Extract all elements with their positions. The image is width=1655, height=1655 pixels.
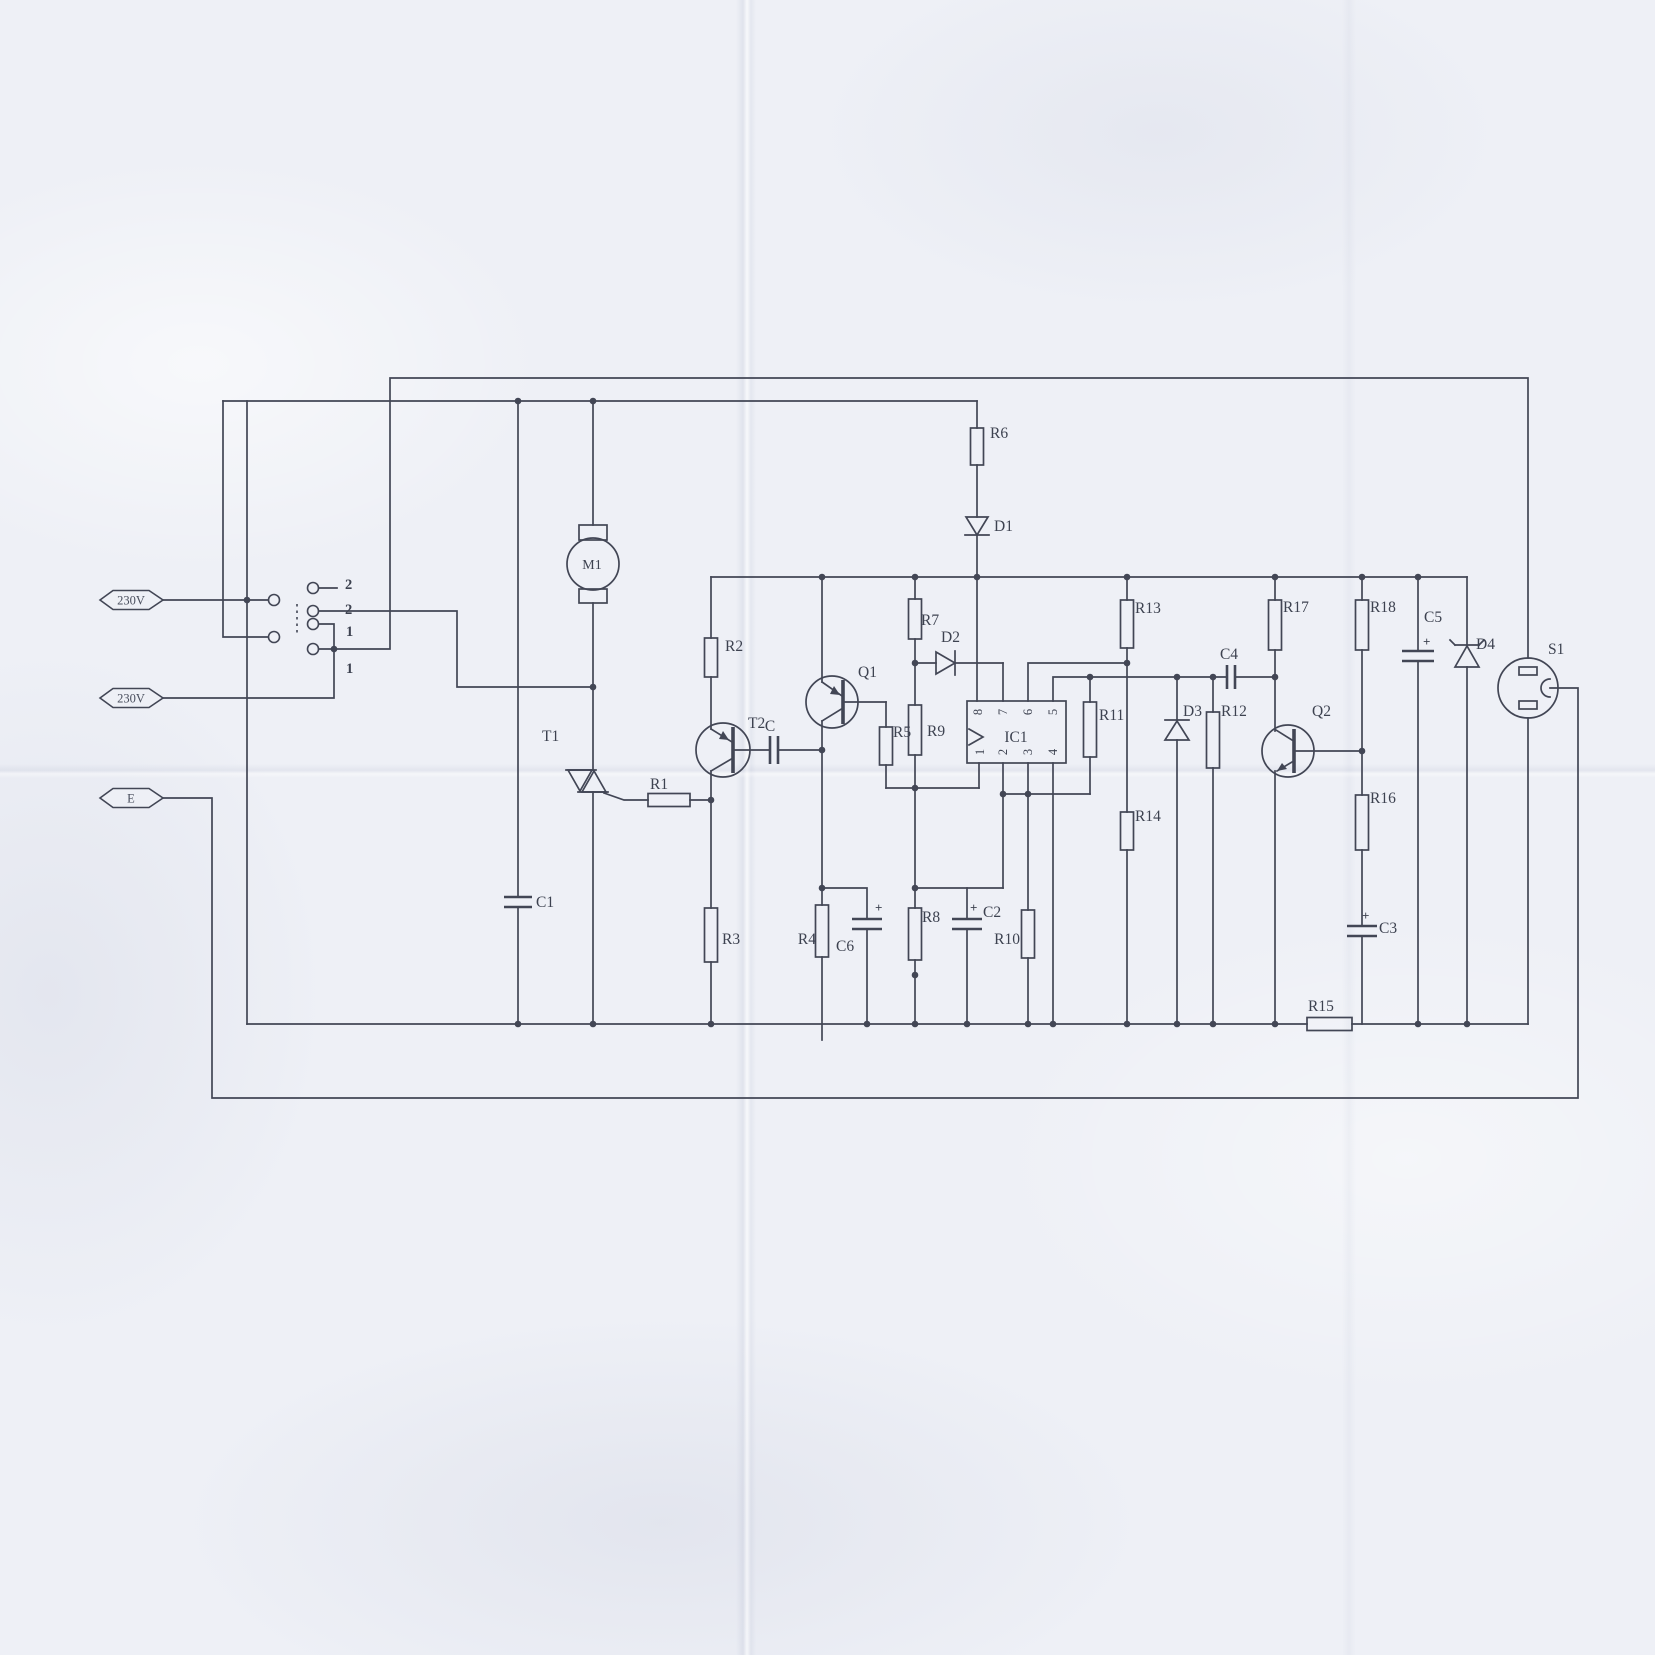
ic1-pin4: 4	[1046, 748, 1060, 755]
capacitor-c-label: C	[765, 718, 775, 735]
resistor-r5: R5	[880, 702, 980, 788]
transistor-q2: Q2	[1262, 677, 1362, 1024]
resistor-r18: R18	[1356, 577, 1397, 795]
ic1-notch	[969, 729, 983, 745]
switch-throw-1b	[308, 644, 319, 655]
outer-rail-wires	[162, 378, 1578, 1098]
ic1-pin8: 8	[971, 709, 985, 715]
capacitor-c4: C4	[1220, 646, 1275, 689]
resistor-r15: R15	[1307, 998, 1352, 1031]
capacitor-c6: + C6	[822, 888, 882, 1024]
resistor-r9: R9	[909, 705, 946, 908]
resistor-r17: R17	[1269, 577, 1310, 677]
transistor-t2: T2	[696, 677, 769, 908]
resistor-r14-label: R14	[1135, 808, 1161, 825]
switch-pole-contact-1	[269, 595, 280, 606]
ic1-pin1: 1	[973, 749, 987, 755]
ic1-pin5: 5	[1046, 709, 1060, 715]
triac-gate-wire	[604, 793, 648, 800]
resistor-r1-label: R1	[650, 776, 668, 793]
capacitor-c2-polarity: +	[970, 900, 977, 915]
diode-d1: D1	[965, 517, 1013, 701]
diode-d4-label: D4	[1476, 636, 1495, 653]
terminal-earth: E	[100, 789, 163, 808]
socket-slot-top	[1519, 667, 1537, 675]
resistor-r2-label: R2	[725, 638, 743, 655]
capacitor-c3-label: C3	[1379, 920, 1397, 937]
switch-pos-label: 2	[345, 602, 352, 618]
ic1-pin3: 3	[1021, 749, 1035, 755]
switch-throw-2a	[308, 583, 319, 594]
switch-pos-label: 1	[346, 661, 353, 677]
resistor-r12-label: R12	[1221, 703, 1247, 720]
resistor-r11: R11	[1084, 677, 1125, 794]
resistor-r4: R4	[798, 905, 829, 1040]
ic1-pin6: 6	[1021, 709, 1035, 715]
switch-pos-label: 2	[345, 577, 352, 593]
transistor-q2-label: Q2	[1312, 703, 1331, 720]
ic1: IC1 8 7 6 5 1 2 3 4	[915, 663, 1227, 1024]
ic1-pin2: 2	[996, 749, 1010, 755]
resistor-r14: R14	[1121, 808, 1162, 1024]
resistor-r10-label: R10	[994, 931, 1020, 948]
socket-slot-bottom	[1519, 701, 1537, 709]
terminal-line2-label: 230V	[117, 692, 145, 706]
resistor-r2: R2	[705, 577, 744, 677]
switch-pole-contact-2	[269, 632, 280, 643]
resistor-r13-label: R13	[1135, 600, 1161, 617]
capacitor-c3-polarity: +	[1362, 908, 1369, 923]
resistor-r16: R16	[1356, 790, 1397, 926]
motor-m1-label: M1	[582, 558, 601, 573]
transistor-q1: Q1	[806, 577, 886, 905]
ic1-label: IC1	[1004, 729, 1027, 746]
capacitor-c2: + C2	[952, 888, 1001, 1024]
diode-d1-label: D1	[994, 518, 1013, 535]
resistor-r1: R1	[648, 776, 711, 807]
triac-t1: T1	[542, 728, 648, 1024]
resistor-r8-label: R8	[922, 909, 940, 926]
capacitor-c6-polarity: +	[875, 900, 882, 915]
capacitor-c4-label: C4	[1220, 646, 1238, 663]
resistor-r13: R13	[1121, 577, 1162, 812]
resistor-r11-label: R11	[1099, 707, 1124, 724]
resistor-r3: R3	[705, 908, 741, 1024]
resistor-r16-label: R16	[1370, 790, 1396, 807]
resistor-r4-label: R4	[798, 931, 816, 948]
capacitor-c-coupling: C	[765, 718, 822, 764]
resistor-r9-label: R9	[927, 723, 945, 740]
ic1-pin7: 7	[996, 709, 1010, 715]
switch-throw-1a	[308, 619, 319, 630]
resistor-r12: R12	[1207, 677, 1247, 1024]
terminal-line1: 230V	[100, 591, 269, 610]
switch-pos-label: 1	[346, 624, 353, 640]
resistor-r18-label: R18	[1370, 599, 1396, 616]
resistor-r17-label: R17	[1283, 599, 1309, 616]
transistor-q1-label: Q1	[858, 664, 877, 681]
capacitor-c5-label: C5	[1424, 609, 1442, 626]
resistor-r7: R7	[909, 577, 940, 705]
resistor-r3-label: R3	[722, 931, 740, 948]
resistor-r15-label: R15	[1308, 998, 1334, 1015]
resistor-r6: R6	[971, 401, 1009, 517]
capacitor-c5: + C5	[1402, 577, 1442, 1024]
diode-d4-zener: D4	[1450, 577, 1495, 1024]
resistor-r7-label: R7	[921, 612, 939, 629]
resistor-r10: R10	[994, 910, 1034, 1024]
scanned-schematic-page: 230V 230V E 2 2 1 1	[0, 0, 1655, 1655]
terminal-earth-label: E	[127, 792, 135, 806]
terminal-line2: 230V	[100, 649, 334, 708]
resistor-r8: R8	[909, 908, 941, 1024]
capacitor-c2-label: C2	[983, 904, 1001, 921]
resistor-r6-label: R6	[990, 425, 1008, 442]
junction-dots	[244, 398, 1471, 1028]
socket-s1: S1	[1498, 641, 1564, 718]
terminal-line1-label: 230V	[117, 594, 145, 608]
capacitor-c5-polarity: +	[1423, 634, 1430, 649]
circuit-schematic: 230V 230V E 2 2 1 1	[0, 0, 1655, 1655]
capacitor-c1-label: C1	[536, 894, 554, 911]
diode-d2: D2	[915, 629, 1003, 701]
capacitor-c6-label: C6	[836, 938, 854, 955]
triac-t1-label: T1	[542, 728, 559, 745]
diode-d3: D3	[1165, 677, 1202, 1024]
capacitor-c1: C1	[504, 401, 554, 1024]
selector-switch: 2 2 1 1	[269, 577, 594, 687]
transistor-t2-label: T2	[748, 715, 765, 732]
capacitor-c3: + C3	[1347, 908, 1397, 1024]
switch-throw-2b	[308, 606, 319, 617]
diode-d2-label: D2	[941, 629, 960, 646]
socket-earth-contact	[1541, 679, 1550, 697]
motor-m1: M1	[567, 401, 619, 770]
socket-s1-label: S1	[1548, 641, 1564, 658]
diode-d3-label: D3	[1183, 703, 1202, 720]
